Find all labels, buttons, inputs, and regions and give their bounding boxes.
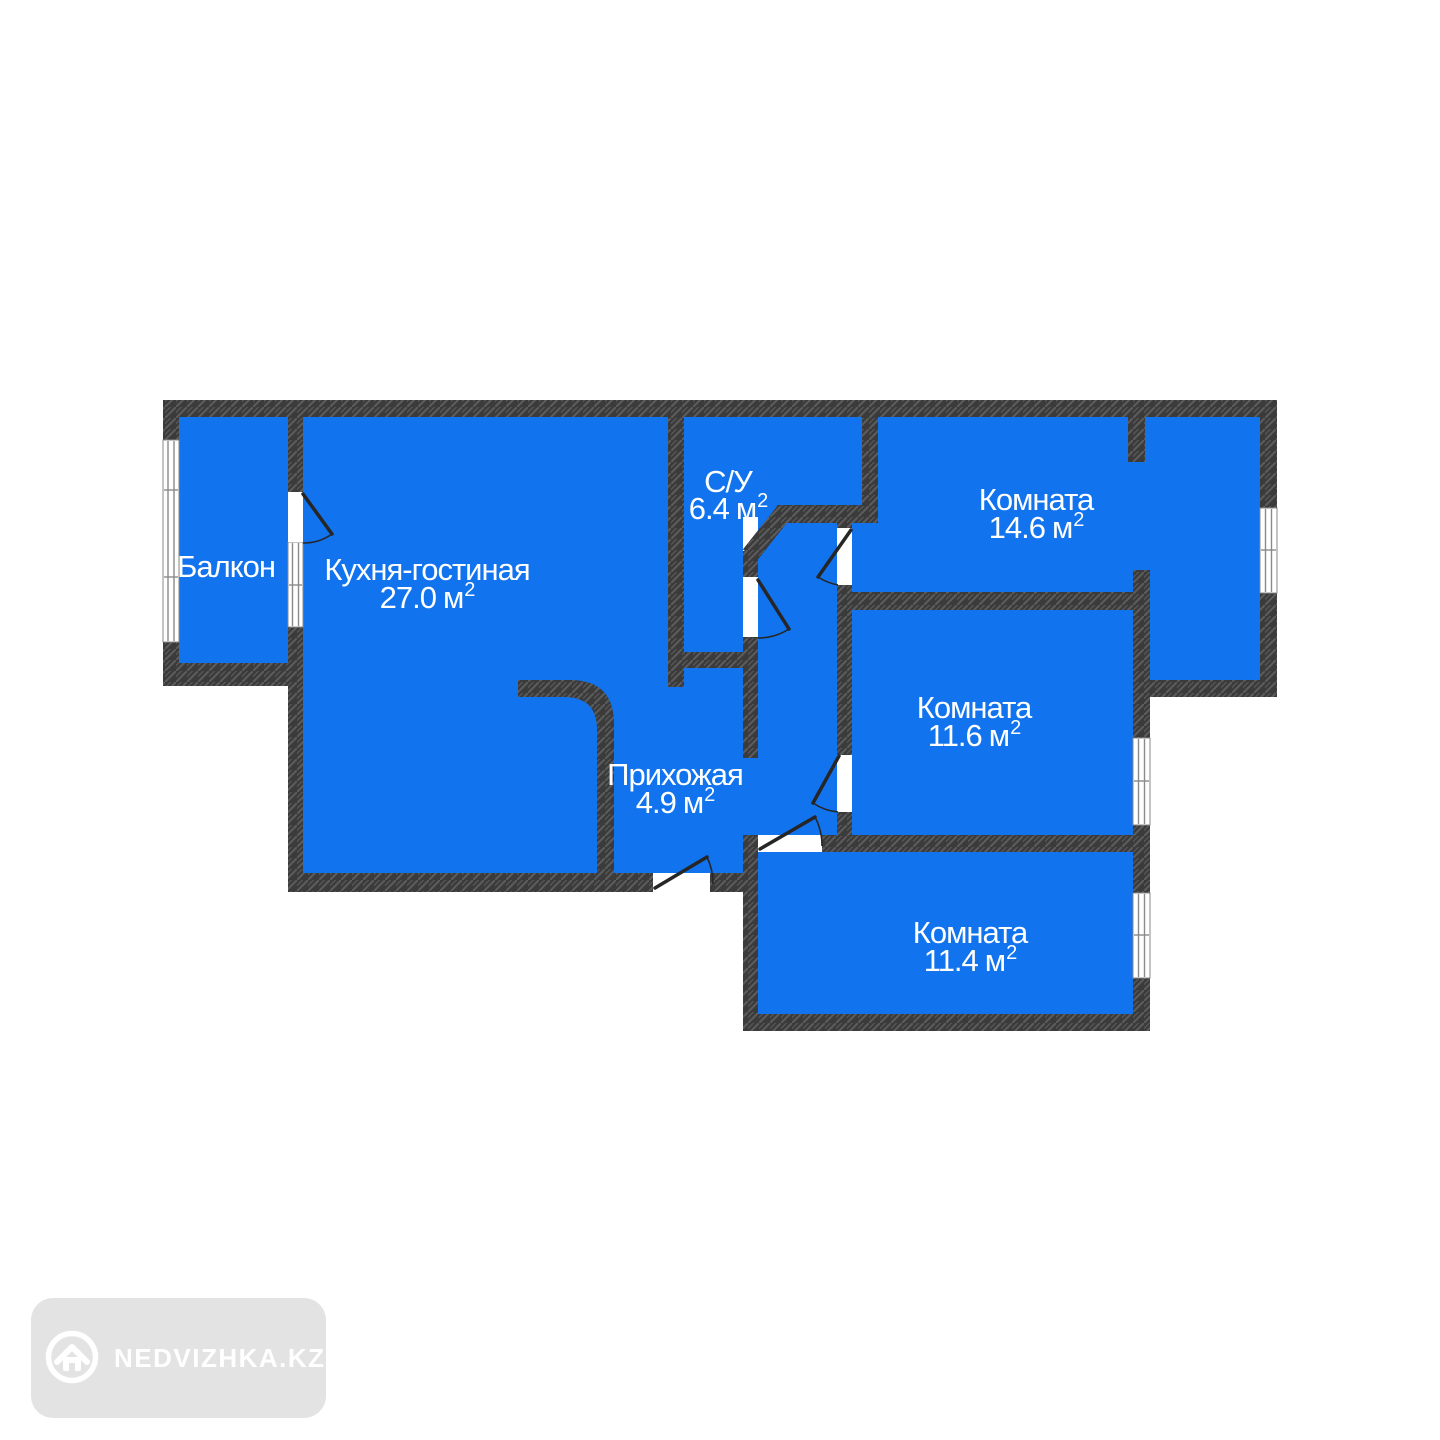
wall-top-stub (1128, 400, 1145, 462)
room-label-balcony: Балкон (177, 549, 275, 584)
room-area-room-2: 11.6м2 (928, 717, 1021, 753)
room-fill-room-1-leg (1150, 417, 1260, 680)
wall-room3-bottom (743, 1014, 1150, 1031)
room-area-room-3: 11.4м2 (924, 942, 1017, 978)
watermark-brand: NEDVIZHKA.KZ (114, 1343, 326, 1373)
window-room-2 (1133, 738, 1150, 825)
room-fill-bathroom-lower (684, 417, 743, 652)
wall-balcony-bottom (163, 663, 303, 686)
wall-room1-room2 (852, 592, 1135, 610)
wall-kitchen-bathroom (668, 400, 684, 687)
room-area-room-1: 14.6м2 (989, 509, 1085, 545)
window-balcony-kitchen (288, 542, 303, 627)
wall-room1-leg-bottom (1135, 680, 1277, 697)
window-balcony-left (163, 440, 179, 642)
wall-bathroom-right (862, 400, 878, 517)
wall-balcony-kitchen (288, 400, 303, 892)
floor-plan-image: Балкон Кухня-гостиная 27.0м2 С/У 6.4м2 К… (0, 0, 1440, 1440)
wall-bathroom-bottom (777, 505, 878, 523)
watermark: NEDVIZHKA.KZ (31, 1298, 326, 1418)
room-area-kitchen-living: 27.0м2 (380, 579, 476, 615)
wall-corridor-stub (668, 652, 743, 668)
window-room-1 (1260, 508, 1277, 593)
wall-top (163, 400, 1277, 417)
wall-room3-left (743, 835, 758, 1031)
room-fill-balcony (179, 417, 288, 663)
window-room-3 (1133, 893, 1150, 978)
